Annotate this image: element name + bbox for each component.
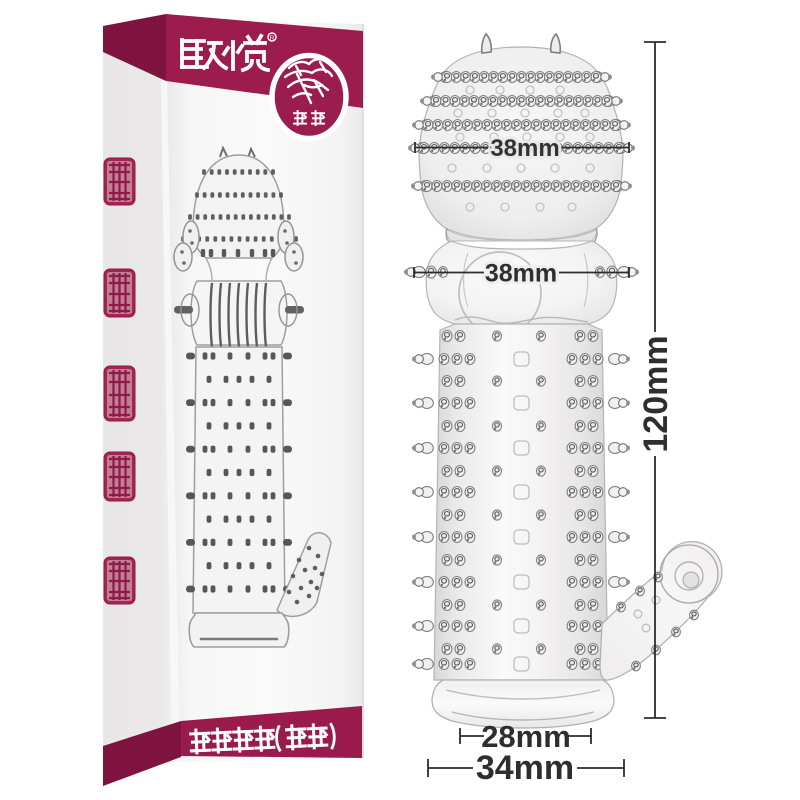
svg-text:38mm: 38mm [490, 135, 559, 162]
svg-text:120mm: 120mm [637, 335, 675, 452]
svg-text:R: R [270, 35, 275, 42]
svg-text:38mm: 38mm [485, 260, 557, 288]
svg-text:34mm: 34mm [476, 749, 574, 787]
